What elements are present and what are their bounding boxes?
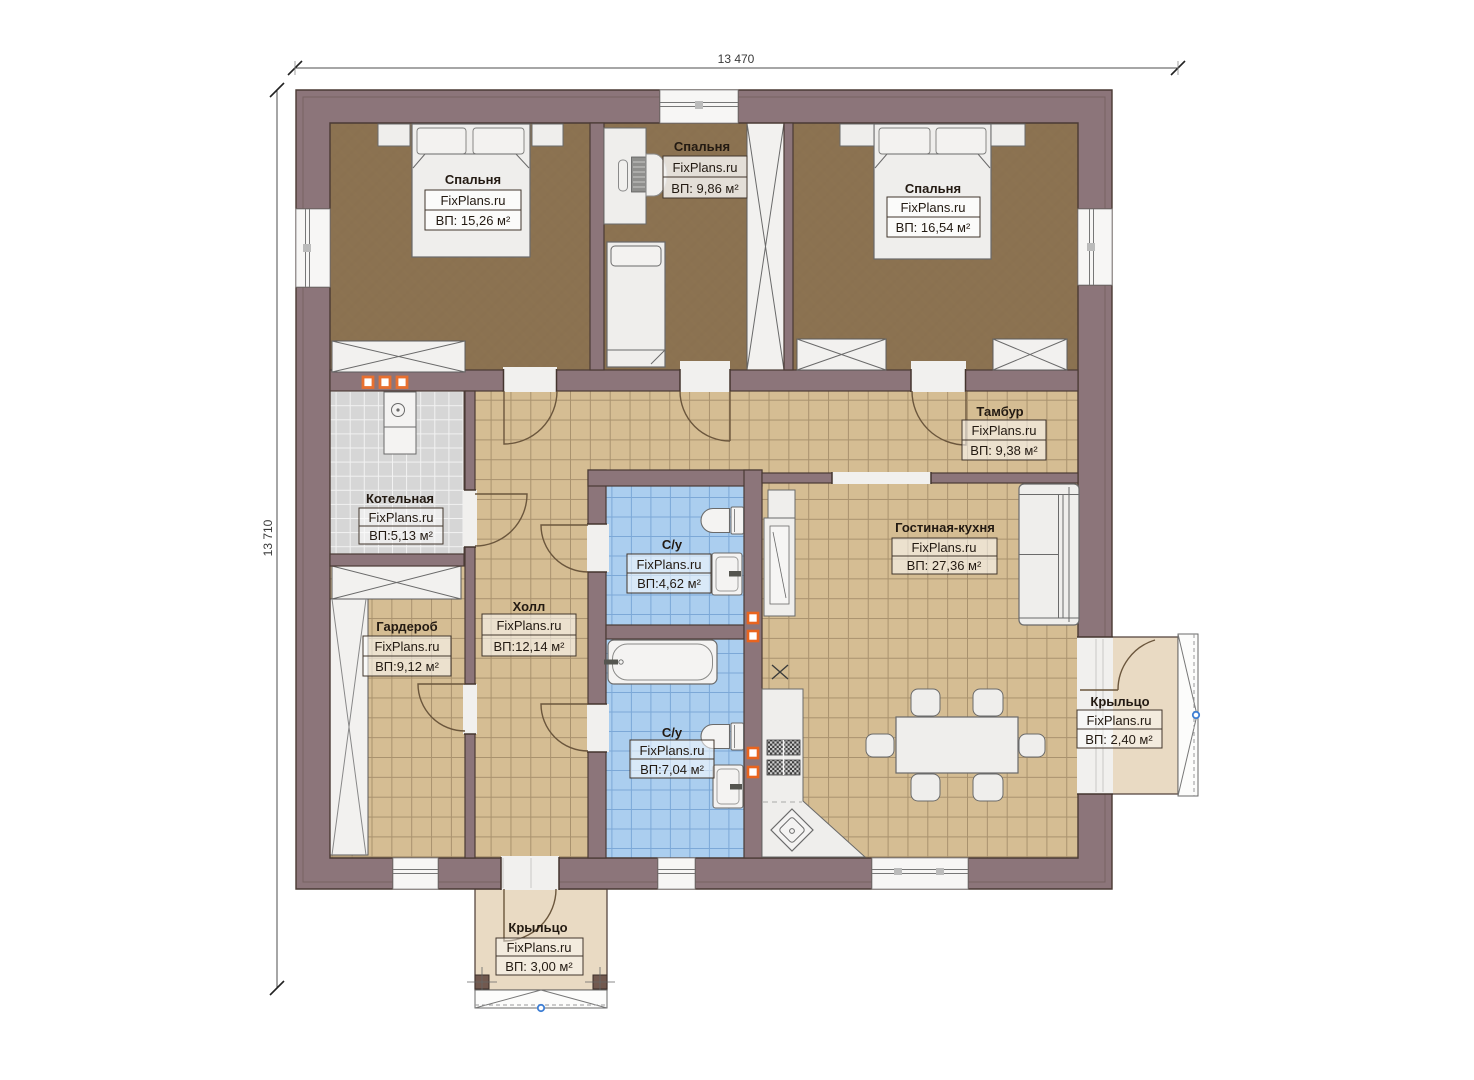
svg-text:Котельная: Котельная — [366, 491, 434, 506]
svg-text:FixPlans.ru: FixPlans.ru — [374, 639, 439, 654]
svg-text:Крыльцо: Крыльцо — [508, 920, 567, 935]
svg-text:ВП:12,14 м²: ВП:12,14 м² — [493, 639, 565, 654]
svg-text:ВП:7,04 м²: ВП:7,04 м² — [640, 762, 704, 777]
svg-text:13 470: 13 470 — [718, 52, 755, 66]
svg-text:ВП: 16,54 м²: ВП: 16,54 м² — [896, 220, 971, 235]
svg-text:13 710: 13 710 — [261, 519, 275, 556]
svg-text:Крыльцо: Крыльцо — [1090, 694, 1149, 709]
svg-text:FixPlans.ru: FixPlans.ru — [496, 618, 561, 633]
svg-text:FixPlans.ru: FixPlans.ru — [636, 557, 701, 572]
svg-text:ВП: 9,86 м²: ВП: 9,86 м² — [671, 181, 739, 196]
svg-text:ВП: 9,38 м²: ВП: 9,38 м² — [970, 443, 1038, 458]
svg-text:ВП:5,13 м²: ВП:5,13 м² — [369, 528, 433, 543]
svg-text:FixPlans.ru: FixPlans.ru — [368, 510, 433, 525]
svg-text:ВП:4,62 м²: ВП:4,62 м² — [637, 576, 701, 591]
svg-text:FixPlans.ru: FixPlans.ru — [639, 743, 704, 758]
svg-text:FixPlans.ru: FixPlans.ru — [672, 160, 737, 175]
svg-text:Гостиная-кухня: Гостиная-кухня — [895, 520, 995, 535]
svg-text:Гардероб: Гардероб — [376, 619, 437, 634]
svg-text:FixPlans.ru: FixPlans.ru — [911, 540, 976, 555]
svg-text:ВП: 15,26 м²: ВП: 15,26 м² — [436, 213, 511, 228]
svg-text:FixPlans.ru: FixPlans.ru — [506, 940, 571, 955]
svg-text:Спальня: Спальня — [674, 139, 730, 154]
svg-text:ВП:9,12 м²: ВП:9,12 м² — [375, 659, 439, 674]
svg-text:Тамбур: Тамбур — [976, 404, 1023, 419]
svg-text:Спальня: Спальня — [445, 172, 501, 187]
svg-text:FixPlans.ru: FixPlans.ru — [900, 200, 965, 215]
svg-text:FixPlans.ru: FixPlans.ru — [971, 423, 1036, 438]
svg-text:ВП: 3,00 м²: ВП: 3,00 м² — [505, 959, 573, 974]
svg-text:Спальня: Спальня — [905, 181, 961, 196]
svg-text:ВП: 27,36 м²: ВП: 27,36 м² — [907, 558, 982, 573]
svg-text:ВП: 2,40 м²: ВП: 2,40 м² — [1085, 732, 1153, 747]
svg-text:FixPlans.ru: FixPlans.ru — [440, 193, 505, 208]
svg-text:FixPlans.ru: FixPlans.ru — [1086, 713, 1151, 728]
svg-text:С/у: С/у — [662, 725, 683, 740]
svg-text:Холл: Холл — [513, 599, 546, 614]
svg-text:С/у: С/у — [662, 537, 683, 552]
